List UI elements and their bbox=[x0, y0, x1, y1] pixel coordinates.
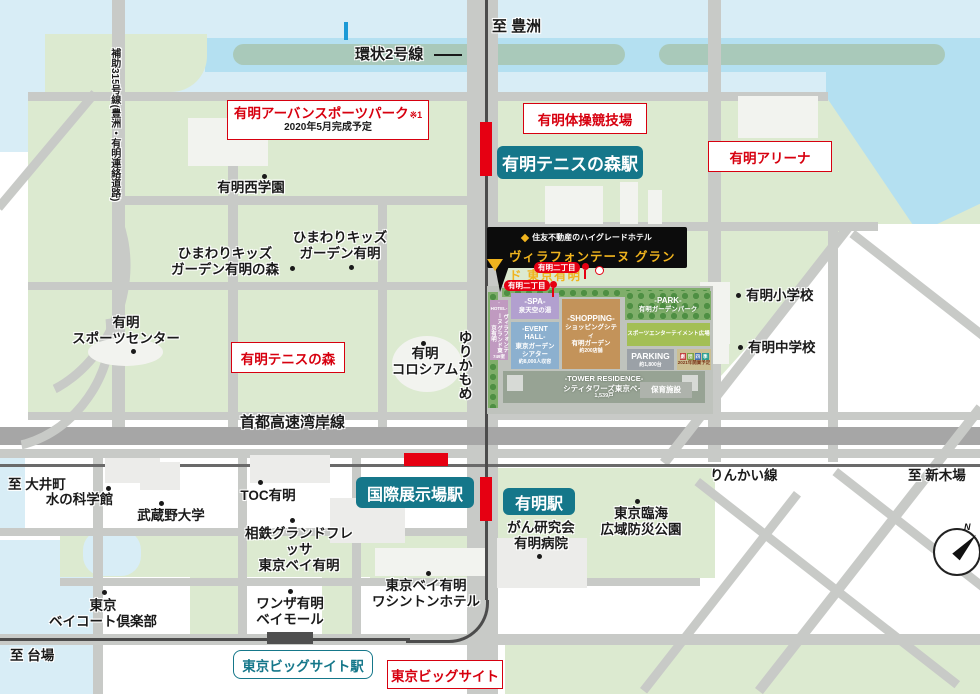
tower-name: シティタワーズ東京ベイ bbox=[563, 384, 645, 393]
facility-title: 東京ビッグサイト bbox=[391, 665, 499, 685]
yurikamome-line-horizontal bbox=[0, 638, 410, 641]
water-left-edge bbox=[0, 92, 28, 152]
poi-dot bbox=[159, 501, 164, 506]
hotel-callout: 住友不動産のハイグレードホテル ヴィラフォンテーヌ グランド 東京有明 bbox=[487, 227, 687, 268]
poi-dot bbox=[131, 349, 136, 354]
poi-sotetsu-hotel: 相鉄グランドフレッサ 東京ベイ有明 bbox=[240, 526, 358, 574]
hotel-tag: -HOTEL- bbox=[490, 300, 508, 311]
bus-stop-pin-stem bbox=[552, 288, 554, 297]
facility-subtitle: 2020年5月完成予定 bbox=[284, 122, 372, 134]
poi-cancer-hospital: がん研究会 有明病院 bbox=[500, 520, 582, 552]
spa-tag: -SPA- bbox=[524, 297, 545, 307]
bus-stop-circle-icon bbox=[595, 266, 604, 275]
building bbox=[250, 455, 330, 483]
station-label: 有明テニスの森駅 bbox=[502, 150, 638, 175]
callout-tagline: 住友不動産のハイグレードホテル bbox=[532, 232, 652, 243]
bridge-marker bbox=[344, 22, 348, 40]
villa-fontaine-logo-icon bbox=[487, 259, 503, 271]
direction-oimachi: 至 大井町 bbox=[8, 477, 66, 493]
station-marker-kokusai-tenjijo bbox=[404, 453, 448, 466]
spa-name: 泉天空の湯 bbox=[519, 307, 552, 315]
tower-tag: -TOWER RESIDENCE- bbox=[565, 374, 644, 383]
compass-north-label: N bbox=[964, 522, 971, 532]
station-tennis-no-mori: 有明テニスの森駅 bbox=[497, 146, 643, 179]
nursery-name: 保育施設 bbox=[651, 385, 681, 394]
facility-note: ※1 bbox=[410, 110, 423, 120]
green-strip-2 bbox=[190, 556, 238, 636]
station-marker-ariake bbox=[480, 477, 492, 521]
event-hall-name: 東京ガーデン シアター bbox=[516, 343, 555, 359]
site-event-hall-block: -EVENT HALL- 東京ガーデン シアター 約8,000人収容 bbox=[511, 322, 559, 369]
sports-plaza-name: スポーツエンターテイメント広場 bbox=[627, 331, 709, 338]
station-kokusai-tenjijo: 国際展示場駅 bbox=[356, 477, 474, 508]
poi-dot bbox=[290, 518, 295, 523]
poi-himawari-mori: ひまわりキッズ ガーデン有明の森 bbox=[160, 246, 290, 278]
tower-units: 1,539戸 bbox=[594, 393, 613, 400]
sumitomo-diamond-icon bbox=[521, 233, 529, 241]
poi-himawari: ひまわりキッズ ガーデン有明 bbox=[285, 230, 395, 262]
poi-dot bbox=[421, 341, 426, 346]
poi-washington-hotel: 東京ベイ有明 ワシントンホテル bbox=[368, 578, 484, 610]
poi-elementary-school: 有明小学校 bbox=[746, 288, 836, 304]
bus-stop-label: 有明二丁目 bbox=[534, 262, 580, 273]
poi-dot bbox=[349, 265, 354, 270]
bus-stop-pin-icon bbox=[550, 281, 557, 288]
building bbox=[738, 96, 818, 138]
bus-stop-pin-stem bbox=[584, 270, 586, 279]
poi-dot bbox=[106, 486, 111, 491]
road bbox=[112, 196, 498, 205]
pond bbox=[83, 530, 141, 576]
site-sports-plaza-block: スポーツエンターテイメント広場 bbox=[627, 323, 710, 346]
site-parking-block: PARKING 約1,800台 bbox=[627, 349, 674, 370]
parking-tag: PARKING bbox=[631, 351, 670, 362]
water-left-lower bbox=[0, 455, 25, 535]
poi-wanza-baymall: ワンザ有明 ベイモール bbox=[252, 596, 328, 628]
site-nursery-block: 保育施設 bbox=[640, 382, 692, 398]
poi-dot bbox=[426, 571, 431, 576]
poi-dot bbox=[290, 266, 295, 271]
site-park-block: -PARK- 有明ガーデンパーク bbox=[625, 291, 711, 320]
direction-toyosu: 至 豊洲 bbox=[492, 18, 541, 36]
poi-sports-center: 有明 スポーツセンター bbox=[70, 315, 182, 347]
facility-title: 有明体操競技場 bbox=[538, 109, 633, 129]
road bbox=[0, 449, 980, 458]
rinkai-label: りんかい線 bbox=[710, 468, 778, 484]
facility-ariake-arena: 有明アリーナ bbox=[708, 141, 832, 172]
hotel-name: ヴィラフォンテーヌ グランド東京有明 bbox=[490, 311, 508, 354]
ariake-area-map: -HOTEL- ヴィラフォンテーヌ グランド東京有明 749室 -SPA- 泉天… bbox=[0, 0, 980, 694]
poi-coliseum: 有明 コロシアム bbox=[382, 346, 468, 378]
building bbox=[648, 190, 662, 224]
facility-title: 有明テニスの森 bbox=[241, 348, 336, 368]
facility-title: 有明アリーナ bbox=[730, 147, 811, 167]
site-theater-block: 劇 団 四 季 2021年開業予定 bbox=[677, 349, 711, 370]
facility-gymnastics-centre: 有明体操競技場 bbox=[523, 103, 647, 134]
park-name: 有明ガーデンパーク bbox=[639, 306, 698, 314]
poi-nishigakuen: 有明西学園 bbox=[196, 180, 306, 196]
poi-junior-high: 有明中学校 bbox=[748, 340, 838, 356]
theater-note: 2021年開業予定 bbox=[678, 360, 711, 366]
shopping-shops: 約200店舗 bbox=[579, 348, 602, 354]
shopping-name: ショッピングシティ 有明ガーデン bbox=[562, 324, 620, 348]
wangan-label: 首都高速湾岸線 bbox=[240, 414, 345, 432]
site-shopping-block: -SHOPPING- ショッピングシティ 有明ガーデン 約200店舗 bbox=[562, 299, 620, 369]
kanjo2-leader bbox=[434, 54, 462, 56]
poi-dot bbox=[537, 554, 542, 559]
poi-dot bbox=[262, 174, 267, 179]
poi-musashino-univ: 武蔵野大学 bbox=[126, 508, 216, 524]
land-topleft bbox=[45, 34, 207, 92]
kanjo2-road-segment bbox=[233, 44, 625, 65]
event-hall-capacity: 約8,000人収容 bbox=[519, 359, 552, 365]
poi-baycourt-club: 東京 ベイコート倶楽部 bbox=[40, 598, 166, 630]
poi-bosai-park: 東京臨海 広域防災公園 bbox=[594, 506, 688, 538]
site-hotel-block: -HOTEL- ヴィラフォンテーヌ グランド東京有明 749室 bbox=[490, 300, 508, 360]
bus-stop-label: 有明二丁目 bbox=[504, 280, 550, 291]
facility-big-sight: 東京ビッグサイト bbox=[387, 660, 503, 689]
hotel-rooms: 749室 bbox=[493, 354, 505, 360]
direction-shinkiba: 至 新木場 bbox=[908, 468, 966, 484]
station-label: 有明駅 bbox=[515, 490, 563, 514]
bus-stop-pin-icon bbox=[582, 263, 589, 270]
poi-dot bbox=[736, 293, 741, 298]
hojo315-label: 補助315号線(豊洲・有明連絡道路) bbox=[108, 48, 120, 201]
tower-building bbox=[507, 375, 523, 391]
poi-dot bbox=[635, 499, 640, 504]
event-hall-tag: -EVENT HALL- bbox=[511, 326, 559, 344]
facility-title: 有明アーバンスポーツパーク bbox=[234, 106, 409, 121]
poi-dot bbox=[102, 590, 107, 595]
kanjo2-road-segment bbox=[659, 44, 945, 65]
station-label: 国際展示場駅 bbox=[367, 481, 463, 505]
facility-tennis-forest: 有明テニスの森 bbox=[231, 342, 345, 373]
facility-title-row: 有明アーバンスポーツパーク※1 bbox=[234, 106, 422, 122]
station-ariake: 有明駅 bbox=[503, 488, 575, 515]
facility-urban-sports-park: 有明アーバンスポーツパーク※1 2020年5月完成予定 bbox=[227, 100, 429, 140]
poi-dot bbox=[288, 589, 293, 594]
poi-dot bbox=[258, 480, 263, 485]
building bbox=[140, 462, 180, 490]
station-label: 東京ビッグサイト駅 bbox=[242, 655, 364, 675]
park-tag: -PARK- bbox=[654, 296, 681, 306]
kanjo2-label: 環状2号線 bbox=[355, 46, 423, 64]
parking-capacity: 約1,800台 bbox=[639, 362, 662, 368]
station-marker-big-sight bbox=[267, 632, 313, 644]
station-marker-tennis-no-mori bbox=[480, 122, 492, 176]
shopping-tag: -SHOPPING- bbox=[567, 314, 615, 324]
building bbox=[545, 186, 603, 224]
wangan-expressway bbox=[0, 427, 980, 445]
poi-toc-ariake: TOC有明 bbox=[228, 488, 308, 504]
poi-water-science-museum: 水の科学館 bbox=[32, 492, 127, 508]
direction-daiba: 至 台場 bbox=[10, 648, 54, 664]
station-big-sight: 東京ビッグサイト駅 bbox=[233, 650, 373, 679]
building bbox=[620, 182, 638, 224]
poi-dot bbox=[738, 345, 743, 350]
